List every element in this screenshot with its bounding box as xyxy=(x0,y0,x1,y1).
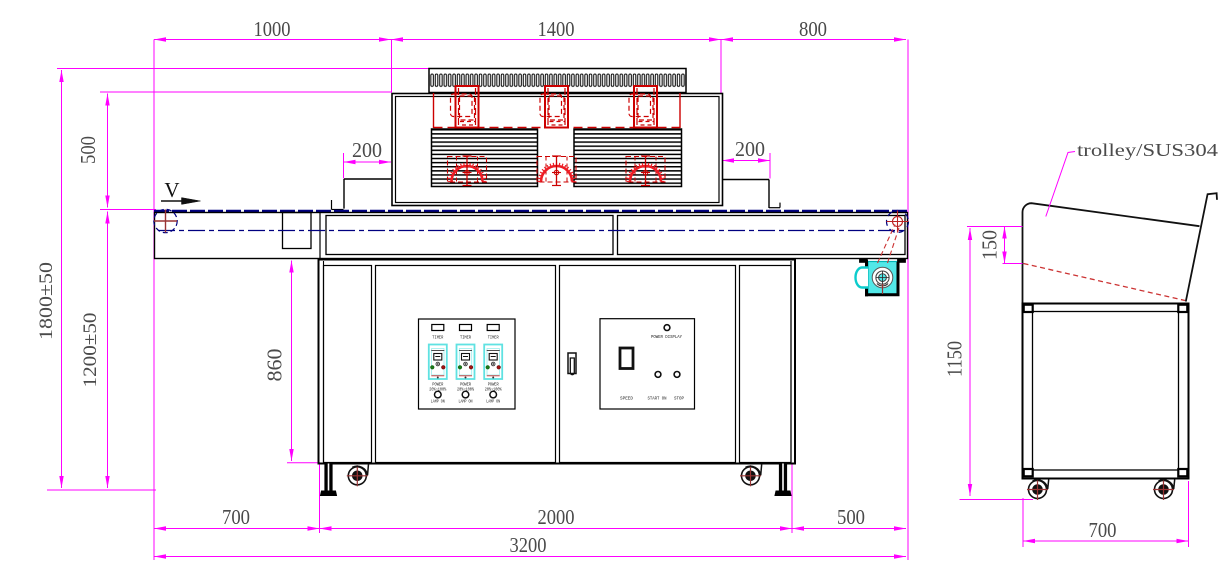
svg-text:200: 200 xyxy=(352,138,382,162)
svg-text:1000: 1000 xyxy=(254,17,291,41)
svg-text:trolley/SUS304: trolley/SUS304 xyxy=(1077,140,1218,160)
svg-text:POWER DISPLAY: POWER DISPLAY xyxy=(651,334,682,340)
svg-text:500: 500 xyxy=(837,505,865,529)
svg-text:LAMP ON: LAMP ON xyxy=(459,399,473,405)
svg-text:STOP: STOP xyxy=(674,396,684,402)
svg-text:SPEED: SPEED xyxy=(620,396,633,402)
svg-text:TIMER: TIMER xyxy=(488,334,499,340)
svg-text:LAMP ON: LAMP ON xyxy=(486,399,500,405)
svg-text:1200±50: 1200±50 xyxy=(80,313,101,388)
svg-text:200: 200 xyxy=(735,137,765,161)
svg-text:1800±50: 1800±50 xyxy=(36,262,57,340)
svg-text:860: 860 xyxy=(263,349,287,382)
svg-text:3200: 3200 xyxy=(510,533,547,557)
svg-text:1400: 1400 xyxy=(538,17,575,41)
svg-text:LAMP ON: LAMP ON xyxy=(431,399,445,405)
svg-text:TIMER: TIMER xyxy=(460,334,471,340)
svg-text:1150: 1150 xyxy=(943,341,967,377)
svg-text:700: 700 xyxy=(222,505,250,529)
svg-text:V: V xyxy=(164,178,179,202)
svg-text:2000: 2000 xyxy=(538,505,575,529)
svg-text:START ON: START ON xyxy=(648,396,667,402)
svg-text:800: 800 xyxy=(799,17,827,41)
svg-text:TIMER: TIMER xyxy=(432,334,443,340)
svg-text:500: 500 xyxy=(76,136,100,164)
svg-text:150: 150 xyxy=(978,230,1002,260)
svg-text:700: 700 xyxy=(1089,518,1117,542)
